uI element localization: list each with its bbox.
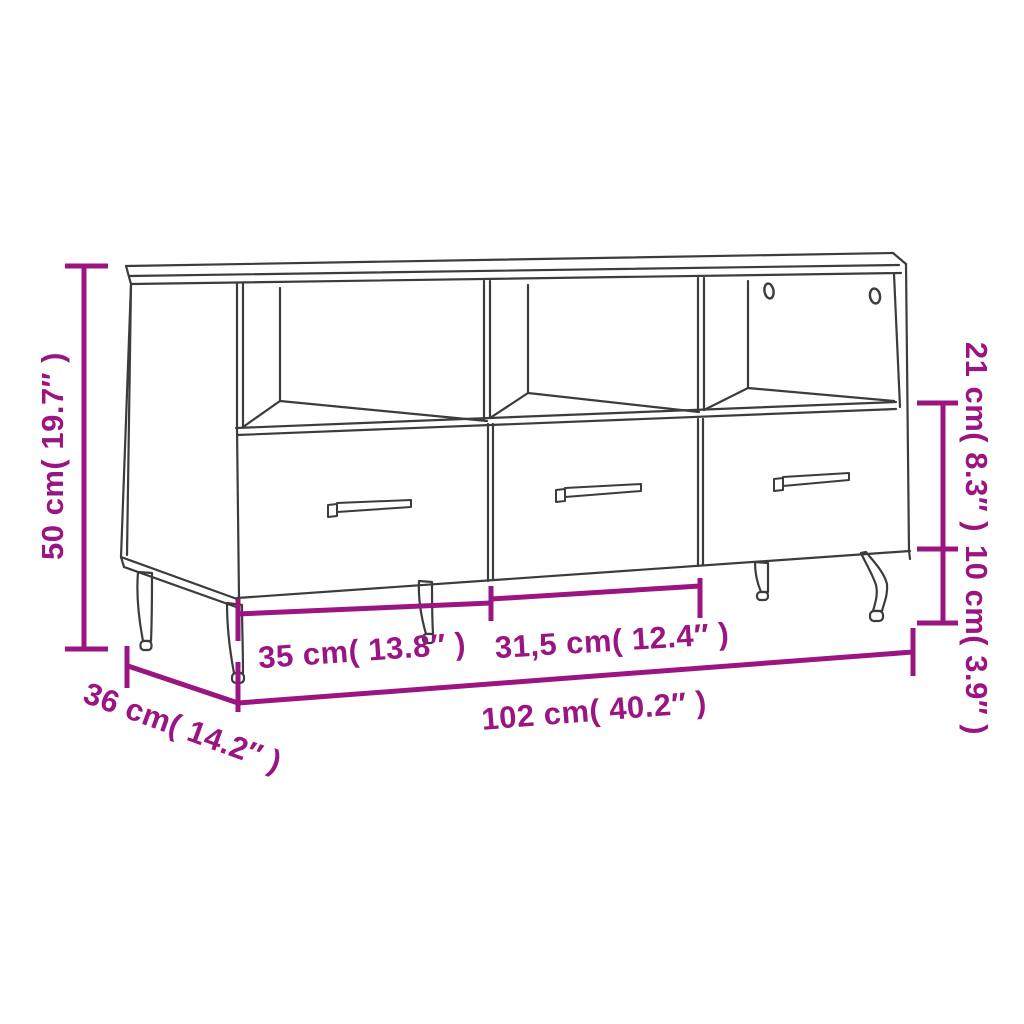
drawer-3-handle — [774, 473, 849, 491]
leg-back-left-foot — [141, 641, 152, 650]
dimension-right-heights — [917, 403, 958, 623]
tv-cabinet-dimension-drawing: 50 cm( 19.7″ ) 36 cm( 14.2″ ) 102 cm( 40… — [0, 0, 1024, 1024]
drawer-dividers — [488, 419, 703, 581]
drawer-1-handle-bar — [337, 500, 411, 512]
drawer-handles — [328, 473, 849, 517]
leg-back-left — [137, 572, 152, 641]
dimension-height — [65, 266, 108, 649]
width-dimension-label: 102 cm( 40.2″ ) — [480, 684, 708, 737]
cable-hole-left — [763, 283, 774, 299]
compartment-divider-1 — [237, 283, 243, 428]
drawer-2-handle-cap — [556, 489, 565, 502]
drawer-divider-1 — [488, 424, 493, 581]
upper-section-height-label: 21 cm( 8.3″ ) — [959, 342, 994, 532]
cable-holes — [763, 283, 881, 304]
drawer-middle-width-line — [491, 586, 700, 599]
leg-back-right-foot — [757, 592, 768, 600]
height-dimension-label: 50 cm( 19.7″ ) — [35, 352, 70, 560]
drawer-left-width-line — [238, 603, 491, 614]
drawer-2-handle-bar — [565, 484, 641, 497]
leg-height-label: 10 cm( 3.9″ ) — [959, 545, 994, 735]
drawer-1-handle — [328, 500, 411, 517]
dimension-labels: 50 cm( 19.7″ ) 36 cm( 14.2″ ) 102 cm( 40… — [35, 342, 994, 780]
depth-dimension-label: 36 cm( 14.2″ ) — [79, 675, 286, 779]
drawer-2-handle — [556, 484, 641, 502]
drawer-top-edge — [237, 409, 896, 435]
cabinet-right-side-edge — [894, 264, 909, 551]
cabinet-top-panel — [126, 253, 906, 284]
compartment-divider-3 — [698, 278, 704, 411]
compartment-2-interior — [490, 285, 699, 418]
right-inner-edge — [894, 274, 900, 407]
drawer-1-left-edge — [237, 428, 239, 598]
right-outer-edge — [906, 264, 909, 551]
bottom-right-corner — [909, 551, 910, 559]
leg-back-right — [755, 562, 768, 592]
compartment-3-interior — [704, 281, 894, 410]
compartment-divider-2 — [484, 281, 490, 419]
cable-hole-right — [869, 288, 881, 305]
drawer-divider-2 — [698, 419, 703, 566]
drawer-middle-width-label: 31,5 cm( 12.4″ ) — [494, 616, 731, 665]
drawer-3-handle-bar — [783, 473, 849, 486]
product-dimension-diagram: 50 cm( 19.7″ ) 36 cm( 14.2″ ) 102 cm( 40… — [0, 0, 1024, 1024]
leg-front-right-foot — [870, 611, 883, 621]
top-panel-back-edge — [126, 253, 893, 266]
drawer-3-handle-cap — [774, 478, 783, 491]
drawer-left-width-label: 35 cm( 13.8″ ) — [257, 626, 467, 675]
compartment-1-interior — [243, 288, 487, 427]
top-panel-right-corner — [893, 253, 906, 264]
cabinet-left-side-panel — [121, 266, 239, 608]
drawer-1-handle-cap — [328, 504, 337, 517]
leg-front-right — [861, 552, 887, 611]
cabinet-bottom-edge — [237, 551, 910, 598]
